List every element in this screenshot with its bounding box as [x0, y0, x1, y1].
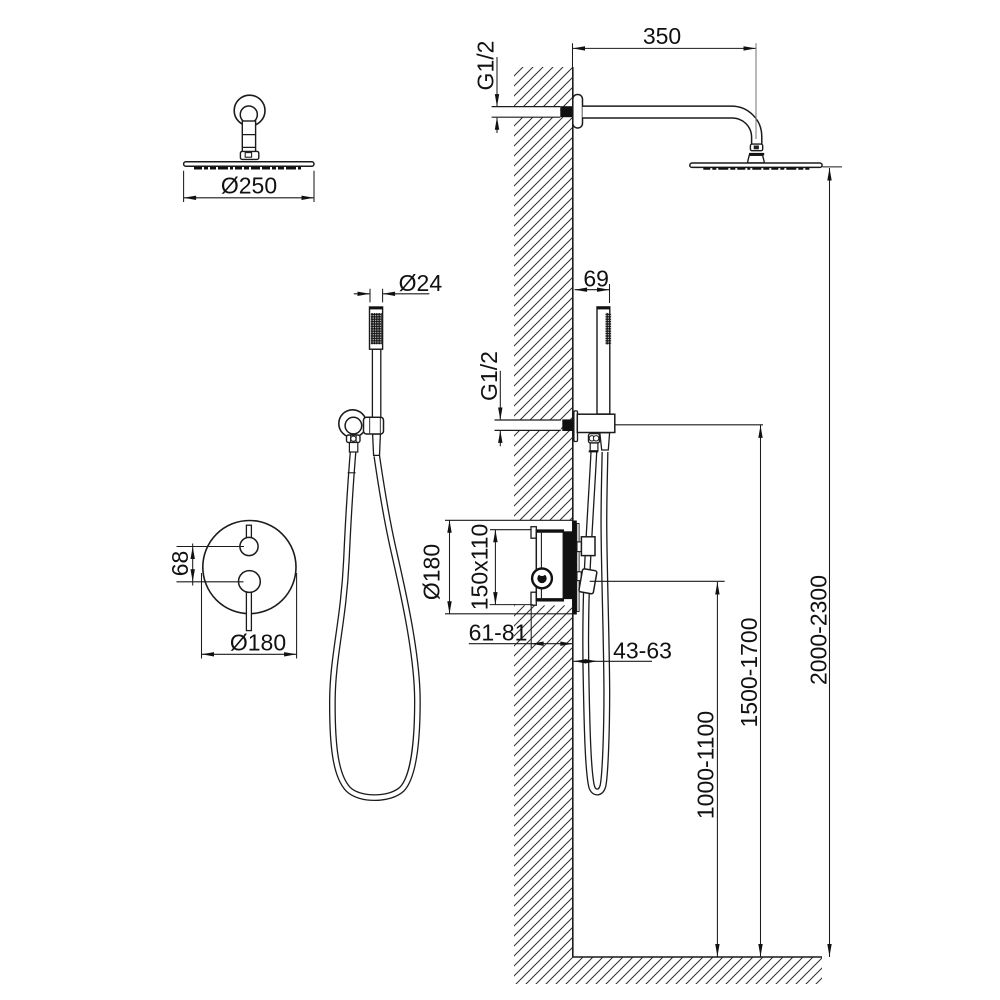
svg-text:Ø24: Ø24 — [399, 270, 443, 296]
svg-text:Ø180: Ø180 — [230, 629, 286, 655]
svg-text:1500-1700: 1500-1700 — [736, 618, 762, 728]
svg-text:61-81: 61-81 — [469, 620, 528, 646]
svg-text:G1/2: G1/2 — [476, 351, 502, 401]
svg-text:G1/2: G1/2 — [473, 41, 499, 91]
svg-text:150x110: 150x110 — [467, 524, 493, 611]
svg-text:69: 69 — [583, 265, 609, 291]
svg-text:1000-1100: 1000-1100 — [693, 711, 719, 819]
svg-text:43-63: 43-63 — [613, 638, 672, 664]
svg-text:Ø180: Ø180 — [419, 544, 445, 600]
svg-text:Ø250: Ø250 — [221, 173, 277, 199]
svg-text:68: 68 — [167, 551, 193, 577]
svg-text:2000-2300: 2000-2300 — [806, 575, 832, 685]
svg-text:350: 350 — [643, 23, 681, 49]
